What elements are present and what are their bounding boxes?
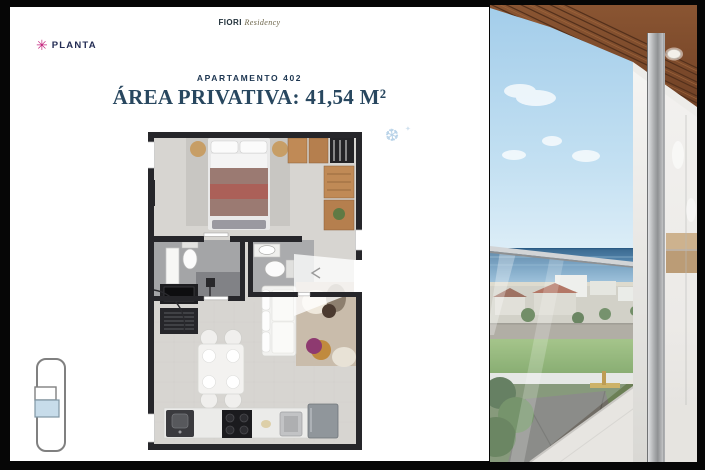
- planta-label-group: ✳ PLANTA: [36, 38, 97, 52]
- asterisk-logo-icon: ✳: [36, 38, 48, 52]
- kitchen-counter: [164, 404, 338, 438]
- nightstand-right: [272, 141, 288, 157]
- snowflake-decoration-icon: ❆: [384, 126, 400, 145]
- shower-floor: [196, 272, 241, 299]
- building-key-plan: [33, 357, 71, 453]
- cooktop: [222, 410, 252, 438]
- brand-title: FIORI Residency: [10, 18, 489, 27]
- apartment-label: APARTAMENTO 402: [10, 73, 489, 83]
- floor-plan: [148, 132, 362, 450]
- slide-canvas: FIORI Residency ✳ PLANTA APARTAMENTO 402…: [0, 0, 705, 470]
- wall-edge: [633, 60, 647, 462]
- nightstand-left: [190, 141, 206, 157]
- planta-label: PLANTA: [52, 40, 97, 51]
- brand-name-secondary: Residency: [244, 18, 280, 27]
- highlighted-unit: [35, 400, 59, 417]
- brand-name-primary: FIORI: [219, 18, 242, 27]
- window-post: [647, 33, 665, 462]
- recessed-light: [668, 50, 681, 59]
- fridge: [308, 404, 338, 438]
- balcony-view-photo: [490, 5, 697, 462]
- private-area-title: ÁREA PRIVATIVA: 41,54 M²: [10, 85, 489, 110]
- service-cabinets: [154, 284, 198, 334]
- small-star-decoration-icon: ✦: [405, 126, 411, 133]
- unit-block-outline: [35, 387, 56, 400]
